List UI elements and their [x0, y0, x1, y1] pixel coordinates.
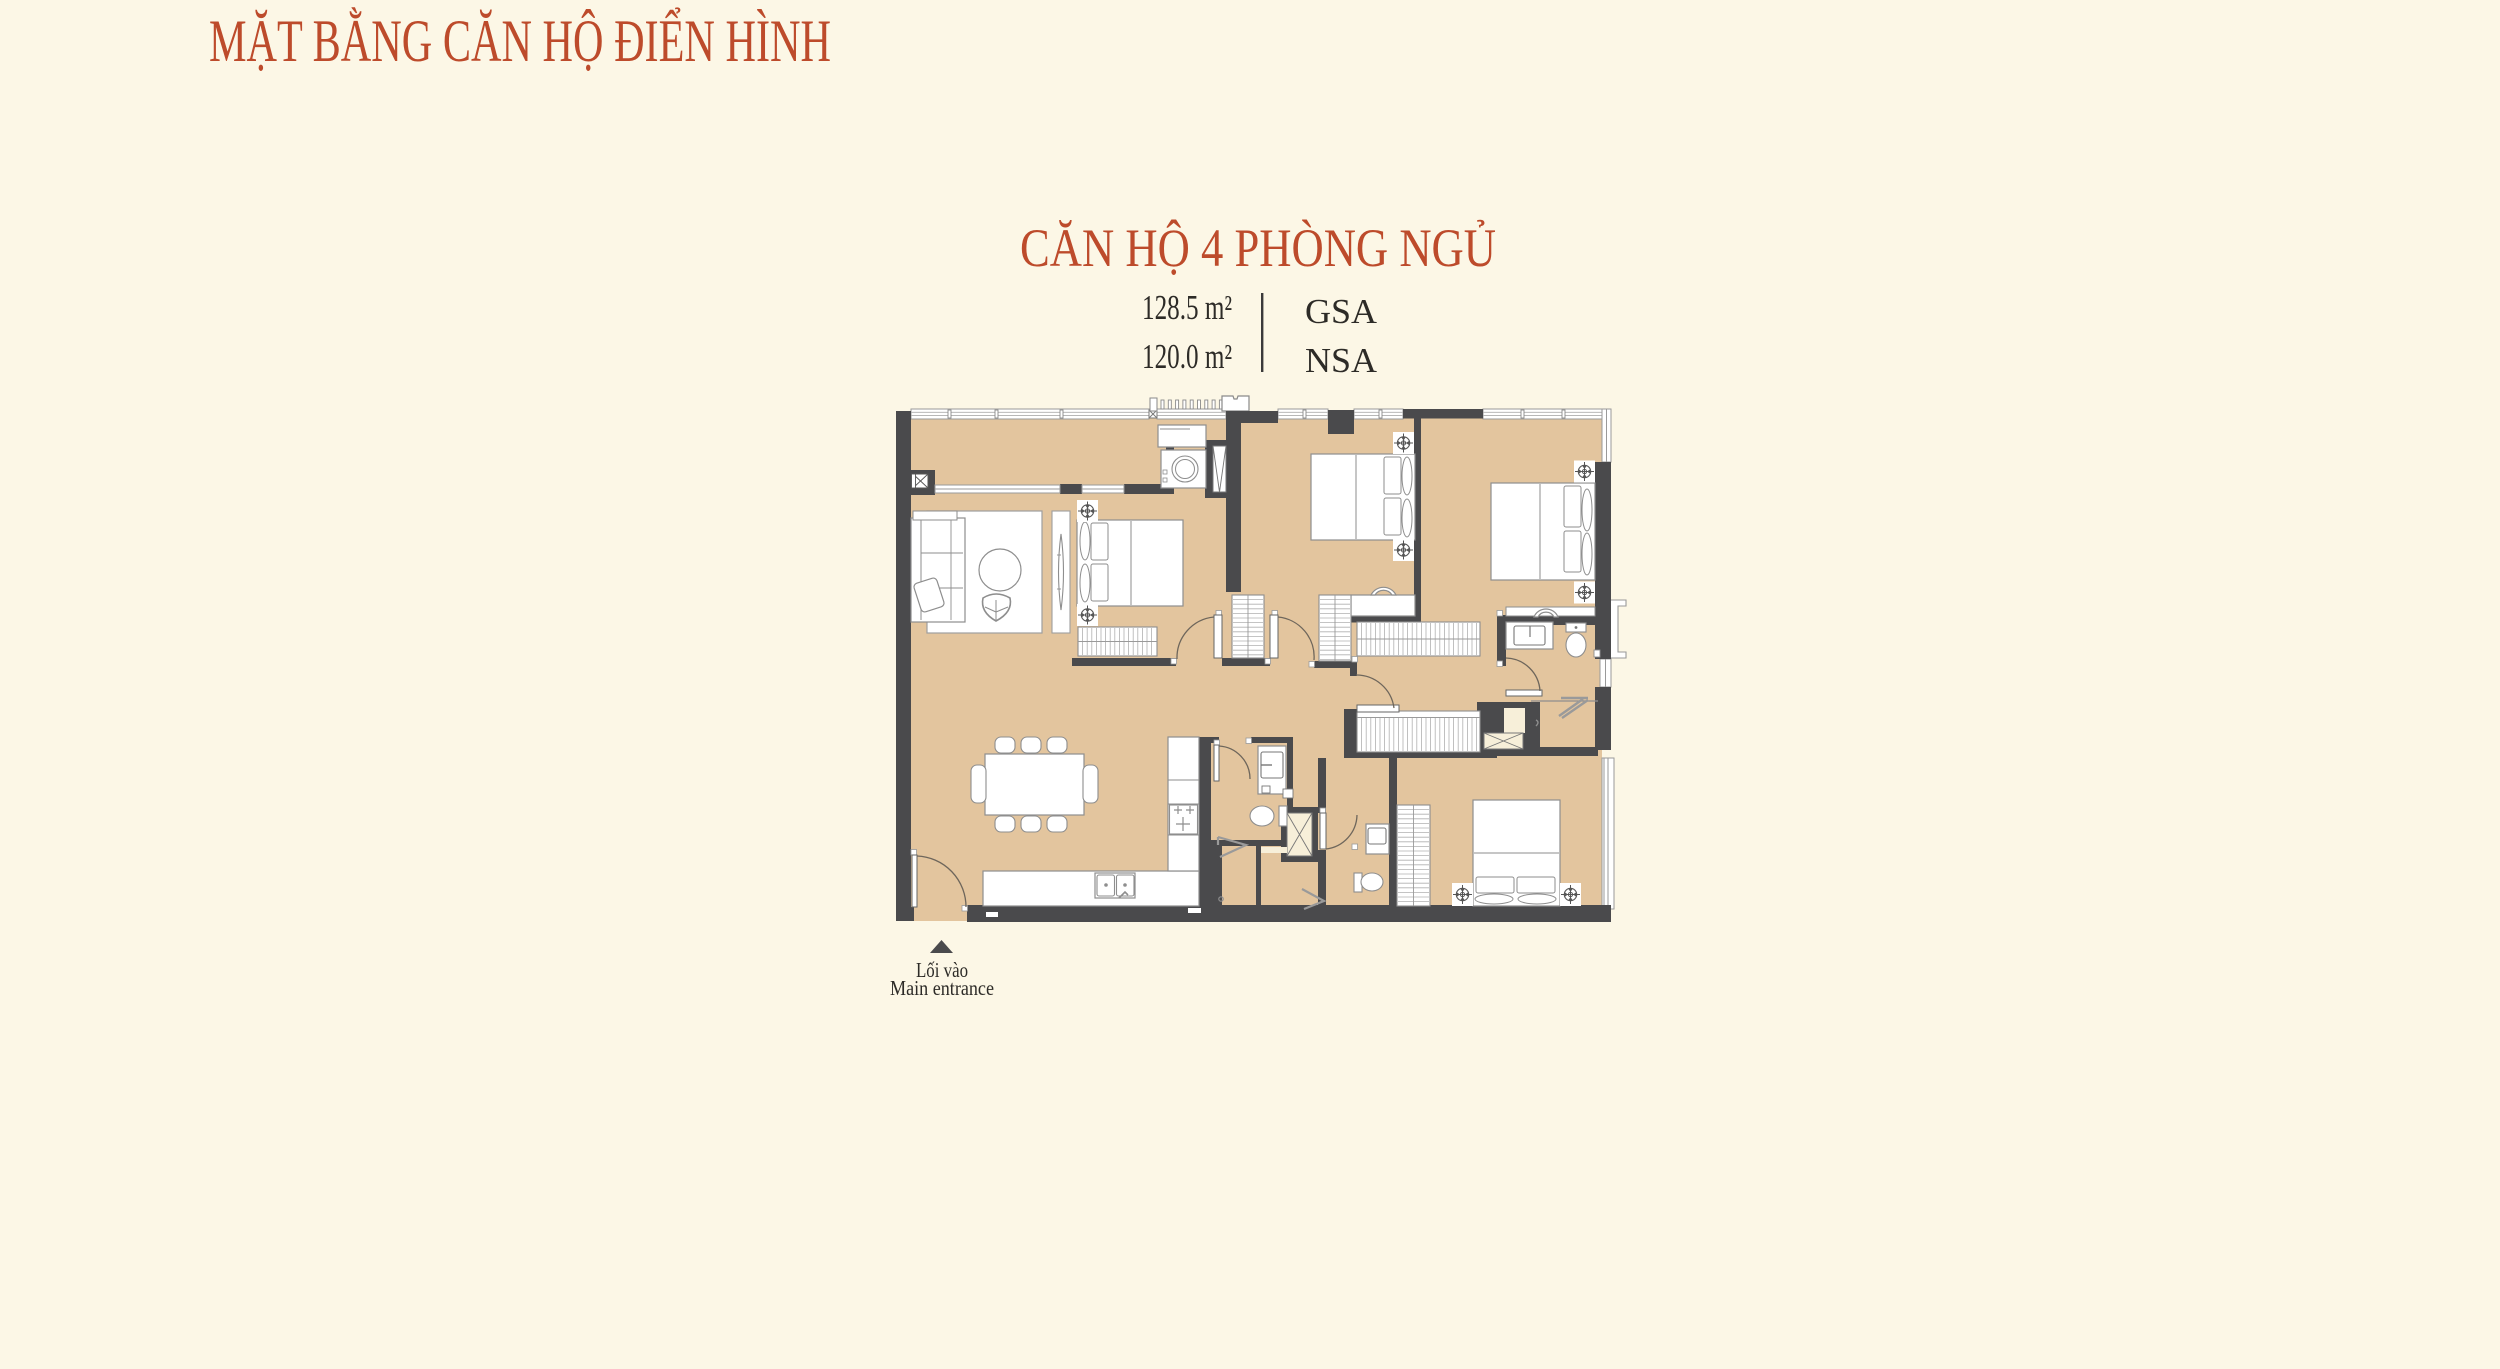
svg-text:Main entrance: Main entrance — [890, 976, 994, 1000]
svg-text:120.0 m²: 120.0 m² — [1142, 337, 1232, 376]
svg-text:NSA: NSA — [1305, 341, 1378, 380]
svg-text:CĂN HỘ 4 PHÒNG NGỦ: CĂN HỘ 4 PHÒNG NGỦ — [1020, 218, 1496, 278]
svg-text:MẶT BẰNG CĂN HỘ ĐIỂN HÌNH: MẶT BẰNG CĂN HỘ ĐIỂN HÌNH — [209, 8, 831, 74]
svg-text:128.5 m²: 128.5 m² — [1142, 288, 1232, 327]
svg-text:GSA: GSA — [1305, 292, 1378, 331]
